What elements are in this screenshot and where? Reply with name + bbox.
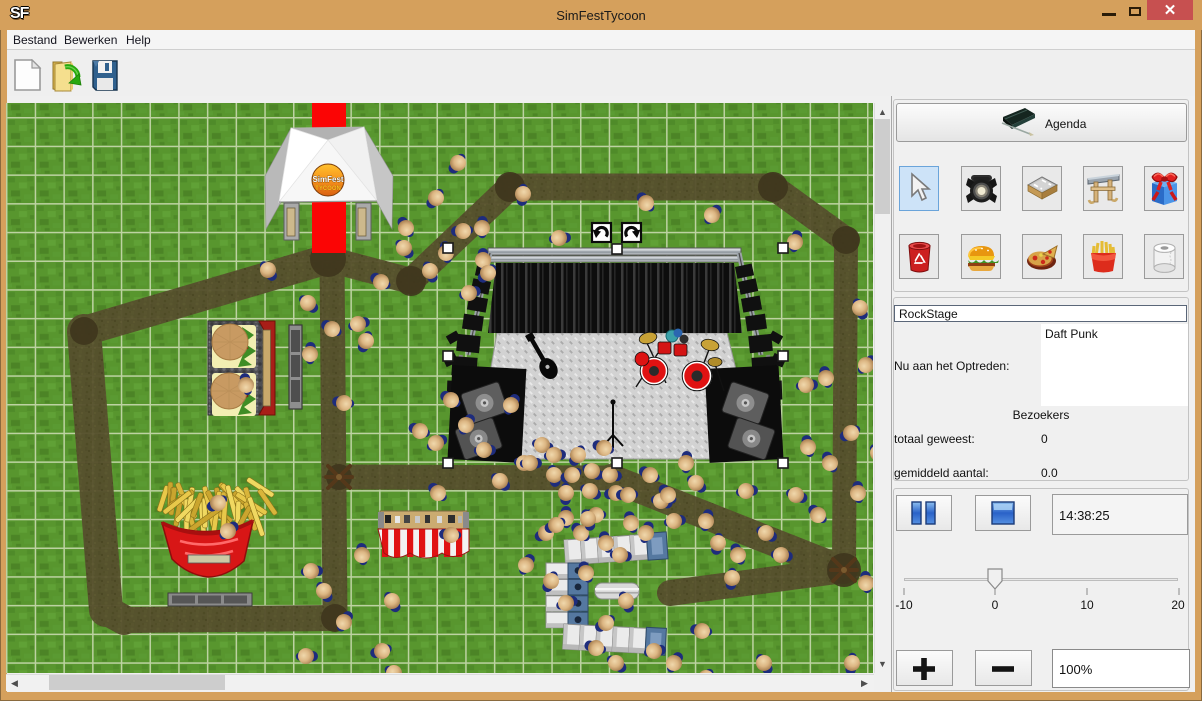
svg-text:TYCOON: TYCOON	[315, 186, 341, 192]
svg-text:SimFest: SimFest	[312, 175, 343, 184]
